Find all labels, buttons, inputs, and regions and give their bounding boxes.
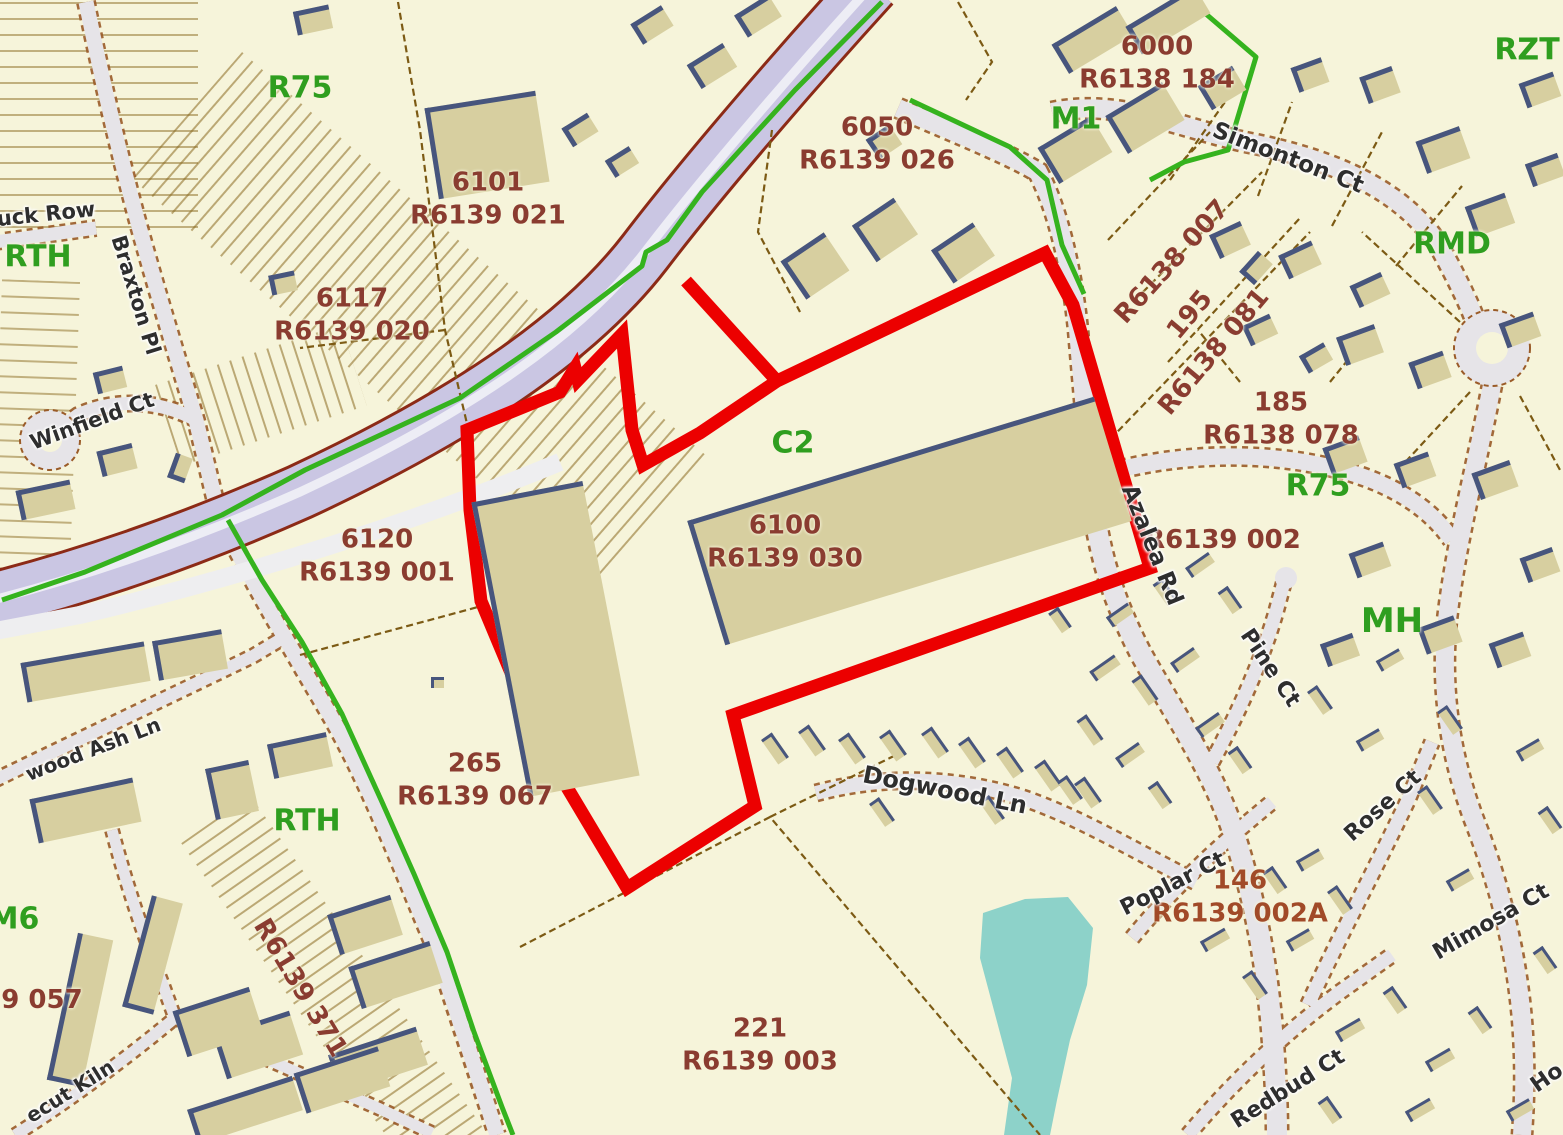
street-name-label: Braxton Pl — [106, 232, 165, 357]
street-name-label: Mimosa Ct — [1429, 879, 1554, 966]
parcel-id-text: 6000 — [1079, 31, 1235, 64]
parcel-id-text: R6139 030 — [707, 542, 863, 575]
zoning-label: RTH — [4, 240, 71, 275]
street-name-label: Redbud Ct — [1227, 1044, 1350, 1134]
parcel-id-label[interactable]: R6139 371 — [246, 913, 354, 1063]
street-name-label: ecut Kiln — [21, 1054, 118, 1127]
parcel-id-text: R6139 026 — [799, 144, 955, 177]
street-name-label: Rose Ct — [1340, 765, 1427, 847]
parcel-id-label[interactable]: 6117R6139 020 — [274, 283, 430, 348]
parcel-id-text: 6120 — [299, 524, 455, 557]
parcel-id-text: R6139 002A — [1152, 897, 1328, 930]
parcel-id-label[interactable]: 6050R6139 026 — [799, 112, 955, 177]
parcel-map-viewport[interactable]: R75RTHM1RZTRMDC2R75MHRTHM66101R6139 0216… — [0, 0, 1563, 1135]
street-name-label: Dogwood Ln — [861, 760, 1030, 819]
parcel-id-label[interactable]: 185R6138 078 — [1203, 387, 1359, 452]
parcel-id-label[interactable]: 6101R6139 021 — [410, 167, 566, 232]
zoning-label: R75 — [268, 71, 333, 106]
parcel-id-text: 6117 — [274, 283, 430, 316]
parcel-id-label[interactable]: 265R6139 067 — [397, 748, 553, 813]
parcel-id-text: 265 — [397, 748, 553, 781]
zoning-label: C2 — [772, 426, 815, 461]
labels-layer: R75RTHM1RZTRMDC2R75MHRTHM66101R6139 0216… — [0, 0, 1563, 1135]
parcel-id-text: 6050 — [799, 112, 955, 145]
street-name-label: wood Ash Ln — [22, 712, 164, 786]
zoning-label: RZT — [1494, 33, 1559, 68]
zoning-label: RTH — [273, 804, 340, 839]
parcel-id-label[interactable]: 9 057 — [1, 984, 82, 1017]
zoning-label: M6 — [0, 902, 39, 937]
street-name-label: Simonton Ct — [1209, 117, 1367, 198]
parcel-id-text: R6139 067 — [397, 780, 553, 813]
parcel-id-label[interactable]: 221R6139 003 — [682, 1013, 838, 1078]
parcel-id-text: 185 — [1203, 387, 1359, 420]
parcel-id-text: R6139 020 — [274, 315, 430, 348]
zoning-label: MH — [1361, 601, 1423, 641]
street-name-label: Pine Ct — [1235, 624, 1305, 711]
parcel-id-text: R6138 078 — [1203, 419, 1359, 452]
parcel-id-text: R6139 003 — [682, 1045, 838, 1078]
parcel-id-label[interactable]: 6100R6139 030 — [707, 510, 863, 575]
parcel-id-text: R6139 371 — [246, 913, 354, 1063]
zoning-label: RMD — [1413, 227, 1491, 262]
parcel-id-label[interactable]: 6000R6138 184 — [1079, 31, 1235, 96]
parcel-id-text: R6138 184 — [1079, 63, 1235, 96]
parcel-id-text: 6100 — [707, 510, 863, 543]
zoning-label: M1 — [1051, 102, 1102, 137]
parcel-id-text: 6101 — [410, 167, 566, 200]
parcel-id-text: R6139 021 — [410, 199, 566, 232]
street-name-label: Ho — [1526, 1058, 1563, 1098]
street-name-label: uck Row — [0, 197, 96, 231]
parcel-id-text: 221 — [682, 1013, 838, 1046]
parcel-id-label[interactable]: 6120R6139 001 — [299, 524, 455, 589]
zoning-label: R75 — [1286, 469, 1351, 504]
parcel-id-text: R6139 001 — [299, 556, 455, 589]
street-name-label: Winfield Ct — [27, 387, 157, 454]
parcel-id-text: 9 057 — [1, 984, 82, 1017]
